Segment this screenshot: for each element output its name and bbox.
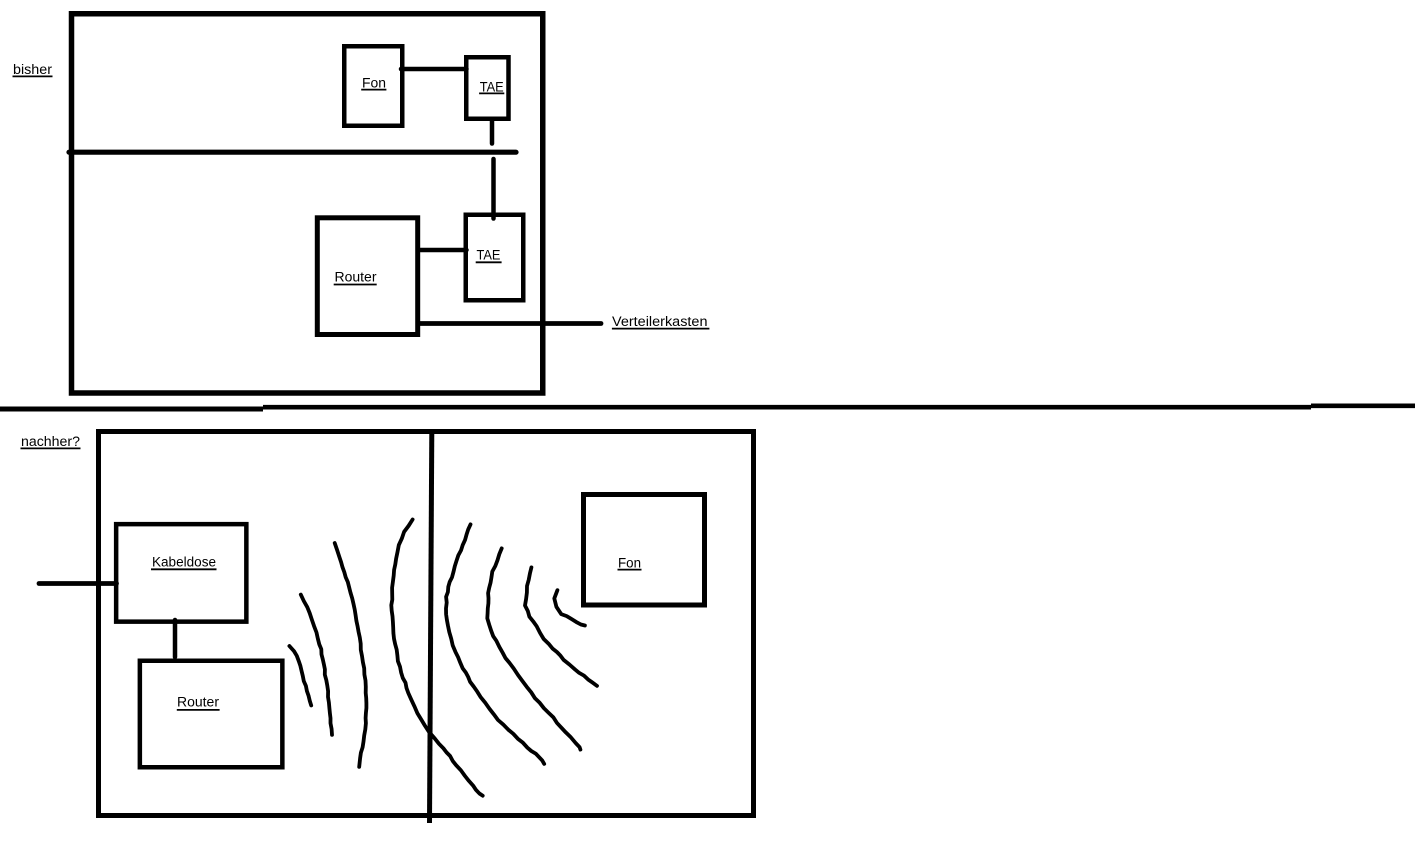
svg-text:Fon: Fon (362, 75, 386, 90)
svg-text:Fon: Fon (618, 556, 641, 571)
svg-text:TAE: TAE (480, 80, 504, 95)
svg-text:Verteilerkasten: Verteilerkasten (612, 314, 708, 329)
svg-text:Router: Router (335, 270, 378, 285)
svg-text:bisher: bisher (13, 62, 53, 77)
svg-text:TAE: TAE (477, 248, 501, 263)
svg-text:Router: Router (177, 695, 220, 710)
svg-text:Kabeldose: Kabeldose (152, 555, 216, 570)
svg-text:nachher?: nachher? (21, 434, 80, 449)
